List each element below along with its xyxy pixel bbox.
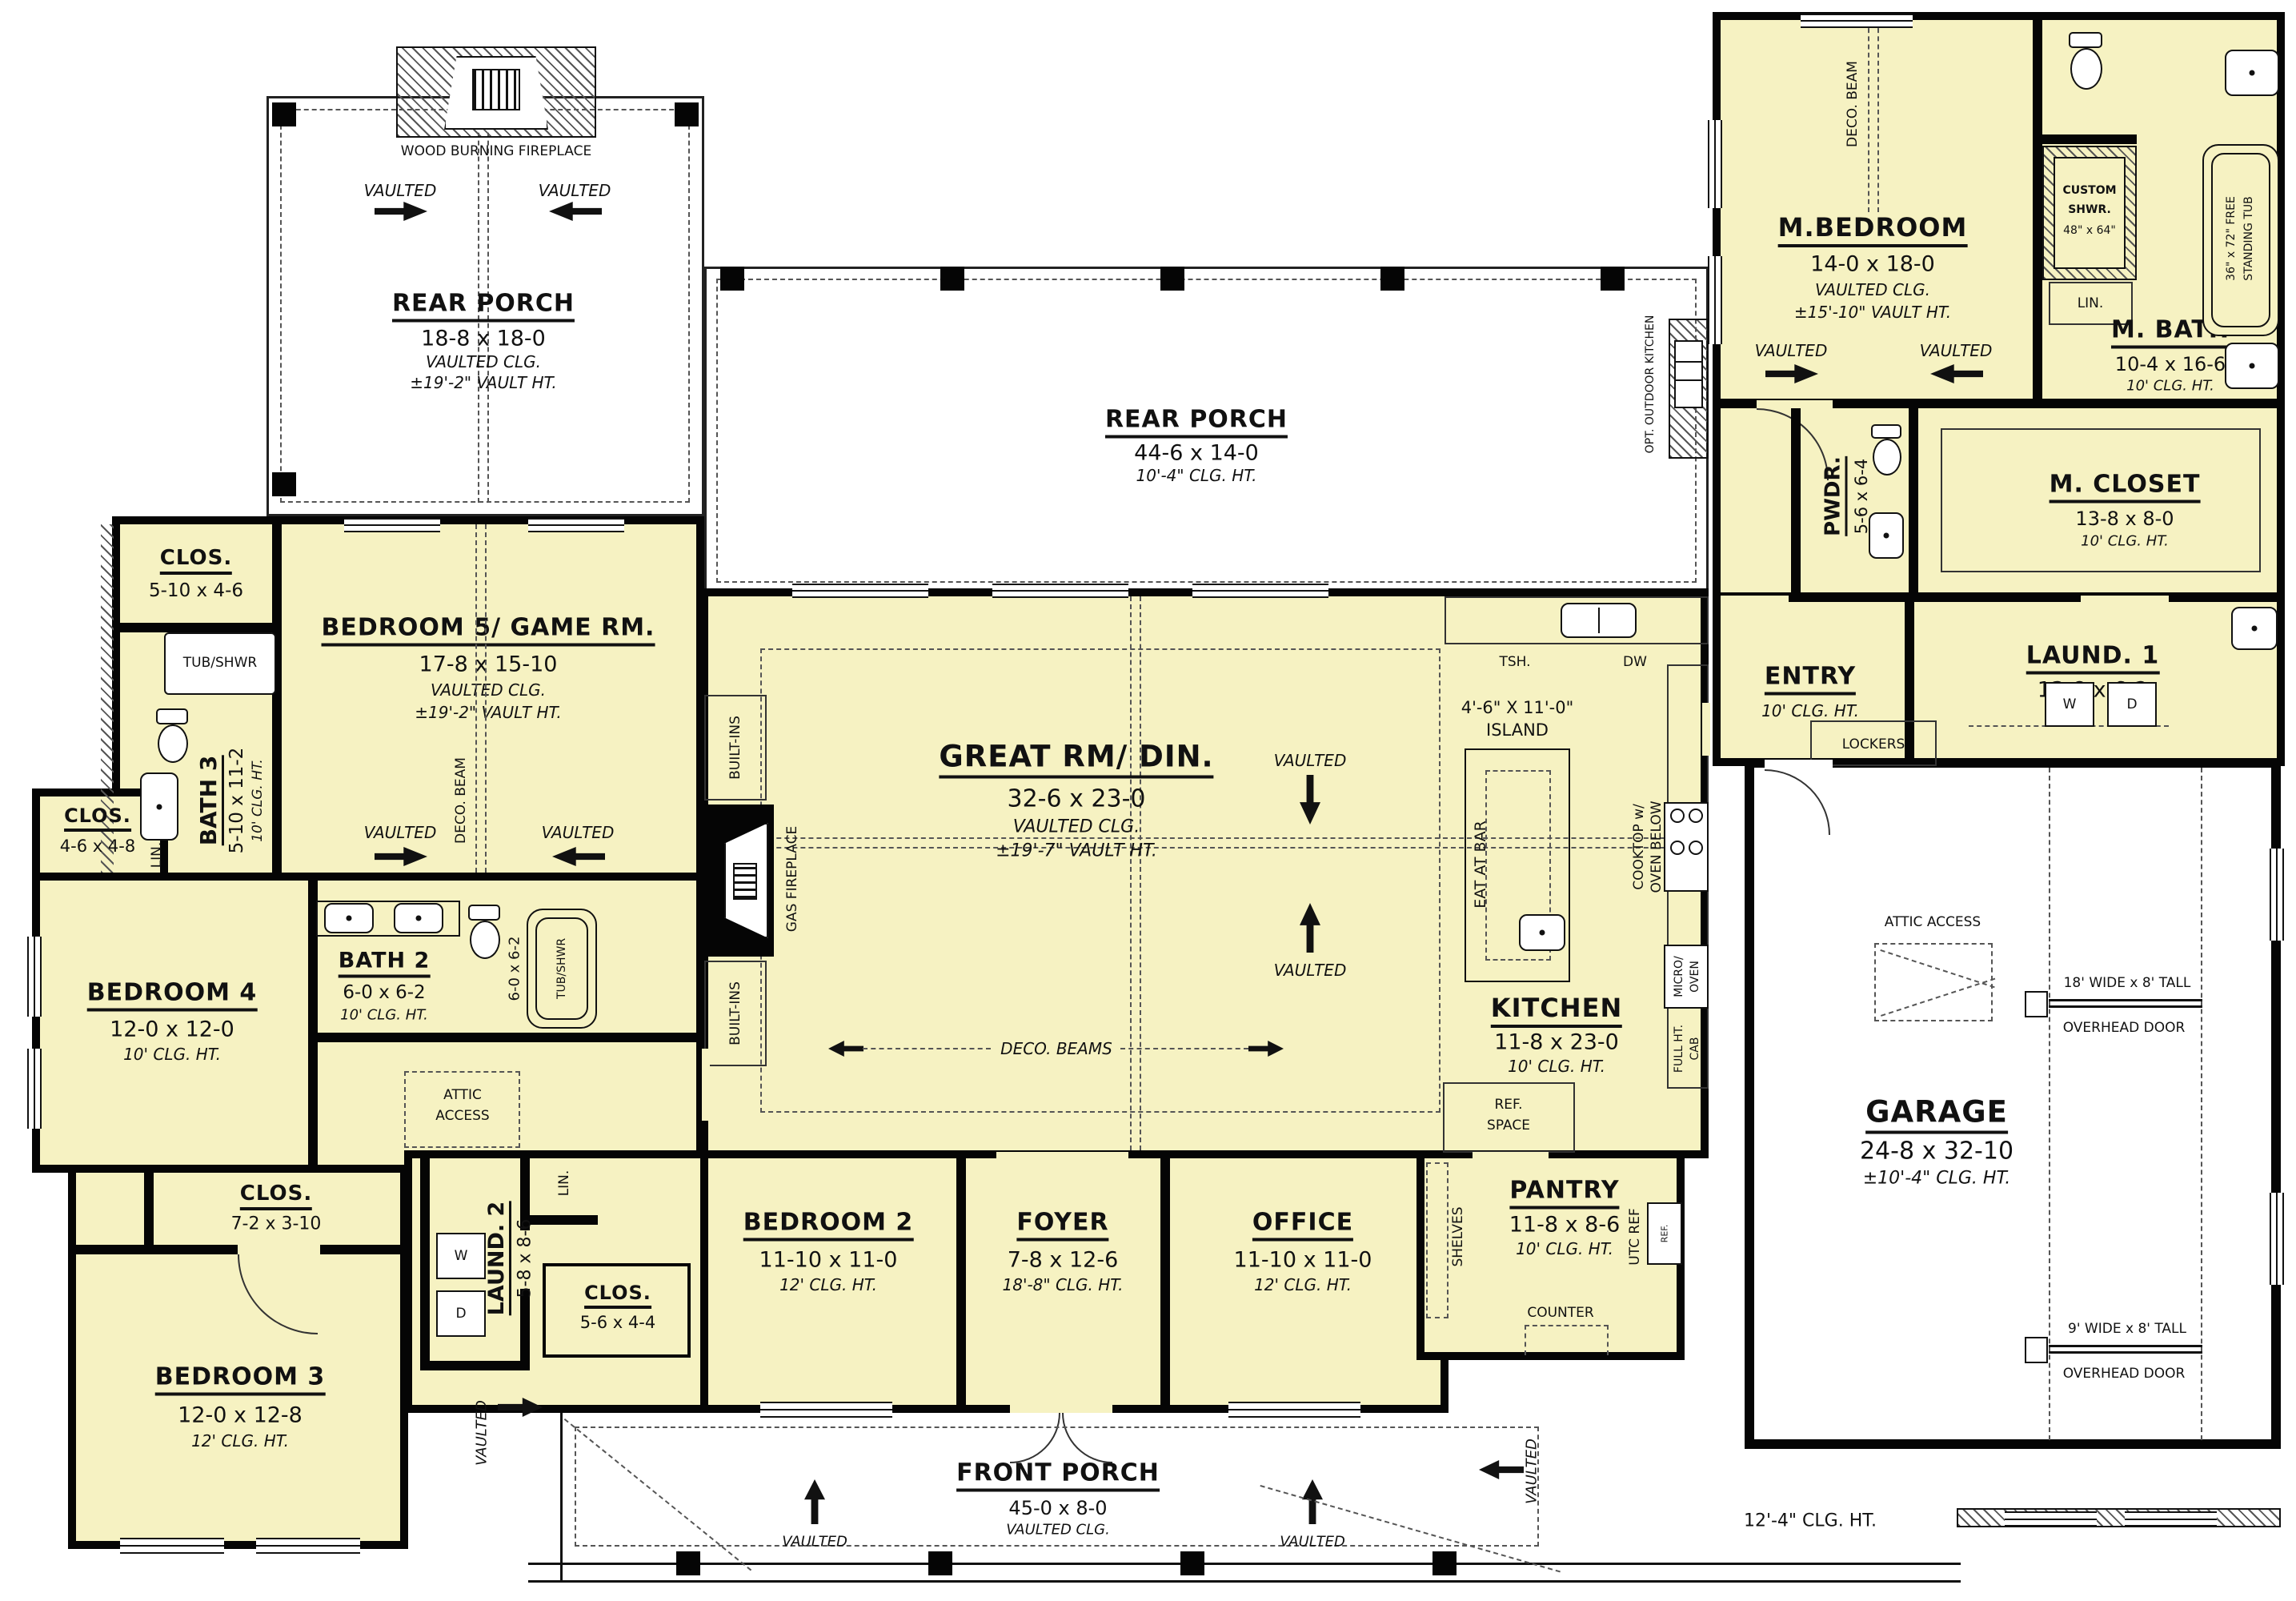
full-height-cabinet-label: CAB [1689, 1037, 1701, 1061]
vaulted-label: VAULTED [1524, 1438, 1541, 1504]
linen-label: LIN. [149, 842, 165, 869]
pantry-title: PANTRY [1509, 1177, 1619, 1210]
overhead-door-9-label: 9' WIDE x 8' TALL [2068, 1321, 2186, 1337]
wall [1909, 408, 1918, 594]
overhead-door-jamb [2025, 1337, 2048, 1363]
vaulted-label: VAULTED [364, 181, 437, 200]
m-bedroom-vault: ±15'-10" VAULT HT. [1794, 303, 1951, 322]
hall-attic-access-label: ACCESS [435, 1108, 489, 1124]
window [992, 584, 1128, 598]
kitchen-clg: 10' CLG. HT. [1508, 1057, 1605, 1076]
porch-column [676, 1551, 700, 1575]
window [2005, 1511, 2097, 1527]
overhead-door-18 [2049, 999, 2202, 1001]
gas-fireplace-coil-icon [733, 863, 757, 900]
cooktop-burner [1670, 809, 1685, 823]
custom-shower-dims: 48" x 64" [2063, 224, 2116, 237]
m-bath-clg: 10' CLG. HT. [2126, 378, 2214, 395]
kitchen-dims: 11-8 x 23-0 [1494, 1030, 1619, 1055]
opening [996, 1152, 1128, 1160]
window [256, 1538, 360, 1554]
eat-at-bar-label: EAT AT BAR [1472, 821, 1489, 909]
bath3-sink [140, 772, 178, 841]
wall [1160, 1150, 1170, 1413]
foyer-dims: 7-8 x 12-6 [1008, 1248, 1119, 1273]
closet-bed3-title: CLOS. [240, 1182, 312, 1210]
bed5-clg: VAULTED CLG. [431, 680, 546, 700]
garage-door-track-line [2201, 768, 2204, 1440]
garage-entry-opening [1765, 760, 1833, 769]
ref-space-label: SPACE [1487, 1117, 1530, 1134]
office-clg: 12' CLG. HT. [1254, 1275, 1352, 1294]
bath2-title: BATH 2 [339, 949, 431, 978]
bed5-vault: ±19'-2" VAULT HT. [415, 703, 561, 722]
closet-hall-box [543, 1263, 691, 1358]
great-room-clg: VAULTED CLG. [1013, 817, 1140, 837]
window [1708, 120, 1722, 208]
custom-shower-label: SHWR. [2068, 203, 2111, 216]
porch-column [940, 267, 964, 291]
rear-porch-main-dims: 44-6 x 14-0 [1134, 441, 1259, 466]
overhead-door-9 [2049, 1351, 2202, 1354]
wall [956, 1150, 966, 1413]
pwdr-toilet-bowl [1873, 439, 1901, 475]
bed4-title: BEDROOM 4 [87, 979, 258, 1012]
outdoor-grill-icon [1674, 340, 1703, 408]
bath3-dims: 5-10 x 11-2 [226, 748, 247, 854]
office-dims: 11-10 x 11-0 [1234, 1248, 1372, 1273]
bath2-sink [324, 903, 374, 933]
trash-label: TSH. [1499, 654, 1530, 670]
free-tub-label: STANDING TUB [2242, 196, 2255, 281]
bed5-title: BEDROOM 5/ GAME RM. [322, 614, 655, 647]
overhead-door-jamb [2025, 991, 2048, 1017]
opening [2081, 596, 2169, 604]
m-bath-sink [2225, 50, 2279, 96]
custom-shower-label: CUSTOM [2062, 184, 2116, 197]
porch-column [1160, 267, 1184, 291]
kitchen-sink [1561, 603, 1637, 638]
cooktop-label: COOKTOP w/ [1631, 804, 1647, 890]
bed2-title: BEDROOM 2 [743, 1209, 914, 1242]
m-bath-toilet [2069, 32, 2102, 48]
window [1228, 1402, 1360, 1418]
vaulted-label: VAULTED [782, 1534, 847, 1551]
pantry-dims: 11-8 x 8-6 [1509, 1213, 1621, 1238]
window [1708, 256, 1722, 344]
m-bedroom-title: M.BEDROOM [1778, 212, 1968, 247]
free-tub-label: 36" x 72" FREE [2225, 196, 2238, 281]
vaulted-label: VAULTED [1274, 961, 1347, 980]
linen-label: LIN. [556, 1170, 572, 1197]
window [1192, 584, 1328, 598]
pwdr-title: PWDR. [1821, 456, 1848, 536]
rear-porch-main-clg: 10'-4" CLG. HT. [1136, 466, 1256, 485]
m-closet-clg: 10' CLG. HT. [2081, 533, 2169, 550]
front-porch-title: FRONT PORCH [956, 1459, 1160, 1492]
washer-letter: W [455, 1248, 468, 1264]
vaulted-label: VAULTED [542, 823, 615, 842]
closet-bed3-dims: 7-2 x 3-10 [231, 1214, 322, 1234]
wall [308, 1033, 708, 1042]
wall [2033, 12, 2042, 408]
m-bedroom-dims: 14-0 x 18-0 [1810, 252, 1935, 277]
dryer-letter: D [455, 1306, 466, 1322]
built-ins-label: BUILT-INS [727, 981, 743, 1045]
pantry-shelves-line [1426, 1162, 1449, 1318]
counter-label: COUNTER [1527, 1305, 1593, 1321]
free-standing-tub [2202, 144, 2279, 336]
m-bedroom-clg: VAULTED CLG. [1815, 280, 1930, 299]
bath2-tub-label: TUB/SHWR [555, 938, 568, 999]
hall-attic-access-label: ATTIC [443, 1087, 482, 1103]
front-porch-clg: VAULTED CLG. [1006, 1522, 1110, 1539]
porch-column [928, 1551, 952, 1575]
bed4-clg: 10' CLG. HT. [123, 1045, 221, 1064]
window [344, 518, 440, 532]
bed2-dims: 11-10 x 11-0 [759, 1248, 898, 1273]
closet-bed5-title: CLOS. [160, 546, 232, 575]
m-closet-dims: 13-8 x 8-0 [2075, 508, 2174, 530]
wall [420, 1361, 530, 1370]
pantry-counter-line [1525, 1325, 1609, 1355]
bed3-dims: 12-0 x 12-8 [178, 1403, 303, 1428]
laundry1-sink [2231, 607, 2278, 650]
front-porch-edge [560, 1413, 563, 1583]
wall [2042, 134, 2137, 144]
bath3-title: BATH 3 [195, 756, 224, 846]
great-room-vault: ±19'-7" VAULT HT. [996, 841, 1157, 861]
ref-space-label: REF. [1494, 1097, 1522, 1113]
bed4-dims: 12-0 x 12-0 [110, 1017, 234, 1042]
closet-hall-title: CLOS. [584, 1282, 651, 1309]
bed5-dims: 17-8 x 15-10 [419, 652, 558, 677]
porch-column [720, 267, 744, 291]
opening [1473, 1152, 1549, 1160]
porch-column [272, 472, 296, 496]
built-ins-label: BUILT-INS [727, 716, 743, 780]
window [2270, 1193, 2284, 1285]
shelves-label: SHELVES [1450, 1206, 1466, 1266]
cooktop-label: OVEN BELOW [1649, 800, 1665, 893]
bath2-toilet [468, 905, 500, 921]
overhead-door-label: OVERHEAD DOOR [2063, 1366, 2186, 1382]
garage-dims: 24-8 x 32-10 [1860, 1138, 2014, 1166]
m-bath-sink [2225, 343, 2279, 389]
wood-fireplace-label: WOOD BURNING FIREPLACE [401, 143, 591, 159]
closet-bed4-dims: 4-6 x 4-8 [60, 837, 135, 856]
opening [1721, 596, 1789, 604]
garage-door-track-line [2049, 768, 2052, 1440]
microwave-oven-cabinet [1664, 945, 1709, 1009]
great-room-title: GREAT RM/ DIN. [939, 740, 1213, 779]
m-bath-toilet-bowl [2070, 48, 2102, 90]
opening [702, 1049, 710, 1121]
great-room-beam-line-v [1130, 596, 1141, 1150]
bed3-title: BEDROOM 3 [155, 1363, 326, 1396]
overhead-door-18 [2049, 1005, 2202, 1008]
full-height-cabinet-label: FULL HT. [1673, 1025, 1685, 1073]
wood-fireplace-grate-icon [472, 69, 520, 110]
vaulted-label: VAULTED [539, 181, 611, 200]
garage-clg: ±10'-4" CLG. HT. [1863, 1169, 2011, 1189]
window [2270, 849, 2284, 941]
cooktop-burner [1689, 809, 1703, 823]
wall [420, 1150, 430, 1370]
m-bedroom-deco-beam-label: DECO. BEAM [1845, 61, 1861, 147]
bed5-deco-beam-label: DECO. BEAM [453, 757, 469, 844]
m-closet-title: M. CLOSET [2050, 471, 2201, 504]
island-sink [1519, 914, 1565, 951]
vaulted-label: VAULTED [1755, 341, 1828, 360]
vaulted-label: VAULTED [1280, 1534, 1345, 1551]
kitchen-title: KITCHEN [1491, 993, 1622, 1028]
island-label: ISLAND [1486, 720, 1549, 740]
window [27, 1049, 42, 1129]
porch-column [272, 102, 296, 126]
pantry-ref-label: REF. [1660, 1225, 1670, 1243]
dishwasher-label: DW [1623, 654, 1647, 670]
window [2125, 1511, 2217, 1527]
rear-porch-left-dims: 18-8 x 18-0 [421, 327, 546, 351]
front-porch-edge [528, 1580, 1961, 1583]
garage-title: GARAGE [1865, 1095, 2008, 1134]
wall [68, 1245, 238, 1254]
wall [272, 516, 282, 881]
deco-beams-label: DECO. BEAMS [1000, 1039, 1112, 1058]
closet-hall-dims: 5-6 x 4-4 [580, 1313, 655, 1332]
window [120, 1538, 224, 1554]
wall [530, 1215, 598, 1225]
rear-porch-left-title: REAR PORCH [392, 290, 575, 323]
gas-fireplace-label: GAS FIREPLACE [784, 826, 800, 932]
microwave-label: MICRO/ [1673, 956, 1685, 997]
bath3-clg: 10' CLG. HT. [250, 759, 266, 842]
bath2-tub-dims: 6-0 x 6-2 [507, 937, 523, 1001]
porch-column [1180, 1551, 1204, 1575]
bath3-toilet-bowl [158, 724, 188, 763]
rear-porch-main-title: REAR PORCH [1105, 406, 1288, 439]
laundry2-title: LAUND. 2 [484, 1202, 511, 1316]
opening [1757, 400, 1833, 408]
bath2-toilet-bowl [470, 921, 500, 959]
bed2-clg: 12' CLG. HT. [779, 1275, 877, 1294]
closet-bed5-dims: 5-10 x 4-6 [149, 580, 243, 601]
pantry-clg: 10' CLG. HT. [1516, 1239, 1613, 1258]
vaulted-label: VAULTED [474, 1400, 491, 1466]
overhead-door-9 [2049, 1345, 2202, 1347]
front-door-opening [1010, 1403, 1112, 1413]
great-room-dims: 32-6 x 23-0 [1008, 785, 1146, 813]
floor-plan: WOOD BURNING FIREPLACE REAR PORCH 18-8 x… [0, 0, 2296, 1601]
front-porch-dims: 45-0 x 8-0 [1008, 1497, 1107, 1519]
pwdr-sink [1869, 512, 1904, 559]
wall [520, 1289, 530, 1370]
wall [1791, 408, 1801, 594]
deco-beams-line [863, 1048, 991, 1051]
garage-attic-access-label: ATTIC ACCESS [1885, 914, 1981, 930]
rear-porch-left-clg: VAULTED CLG. [426, 352, 541, 371]
porch-column [1601, 267, 1625, 291]
strip-ceiling-label: 12'-4" CLG. HT. [1744, 1511, 1877, 1531]
closet-bed4-title: CLOS. [64, 805, 131, 832]
window [27, 937, 42, 1017]
vaulted-label: VAULTED [1274, 751, 1347, 770]
vaulted-label: VAULTED [364, 823, 437, 842]
washer-letter: W [2063, 696, 2077, 712]
bath2-sink [394, 903, 443, 933]
laundry1-title: LAUND. 1 [2026, 642, 2160, 675]
rear-porch-left-vault: ±19'-2" VAULT HT. [410, 373, 556, 392]
foyer-clg: 18'-8" CLG. HT. [1002, 1275, 1123, 1294]
opening [1702, 703, 1710, 756]
entry-clg: 10' CLG. HT. [1761, 701, 1859, 720]
porch-column [1432, 1551, 1457, 1575]
cooktop-burner [1670, 841, 1685, 855]
window [528, 518, 624, 532]
cooktop-burner [1689, 841, 1703, 855]
overhead-door-label: OVERHEAD DOOR [2063, 1020, 2186, 1036]
microwave-label: OVEN [1689, 961, 1701, 993]
bed3-clg: 12' CLG. HT. [191, 1431, 289, 1451]
pwdr-toilet [1871, 424, 1901, 439]
window [792, 584, 928, 598]
wall [144, 1165, 154, 1254]
porch-column [675, 102, 699, 126]
window [760, 1402, 892, 1418]
lockers-label: LOCKERS [1842, 736, 1905, 752]
porch-column [1380, 267, 1404, 291]
outdoor-kitchen-label: OPT. OUTDOOR KITCHEN [1644, 315, 1657, 454]
window [1801, 14, 1913, 28]
bath3-tub-label: TUB/SHWR [183, 655, 257, 671]
dryer-letter: D [2126, 696, 2137, 712]
utc-ref-label: UTC REF [1627, 1208, 1643, 1265]
overhead-door-18-label: 18' WIDE x 8' TALL [2064, 975, 2191, 991]
deco-beams-line [1120, 1048, 1248, 1051]
bath3-toilet [156, 708, 188, 724]
bed5-deco-beam-line [475, 524, 487, 873]
foyer-title: FOYER [1016, 1209, 1108, 1242]
linen-label: LIN. [2078, 295, 2104, 311]
island-dims: 4'-6" X 11'-0" [1461, 698, 1574, 717]
wall [112, 623, 282, 632]
bath2-clg: 10' CLG. HT. [340, 1007, 428, 1024]
entry-title: ENTRY [1765, 663, 1856, 696]
laundry2-dims: 5-8 x 8-6 [515, 1219, 535, 1298]
bath2-dims: 6-0 x 6-2 [343, 982, 425, 1003]
vaulted-label: VAULTED [1920, 341, 1993, 360]
m-bath-dims: 10-4 x 16-6 [2115, 353, 2226, 375]
wall [320, 1245, 408, 1254]
office-title: OFFICE [1252, 1209, 1353, 1242]
m-bedroom-deco-beam-line [1868, 20, 1879, 212]
